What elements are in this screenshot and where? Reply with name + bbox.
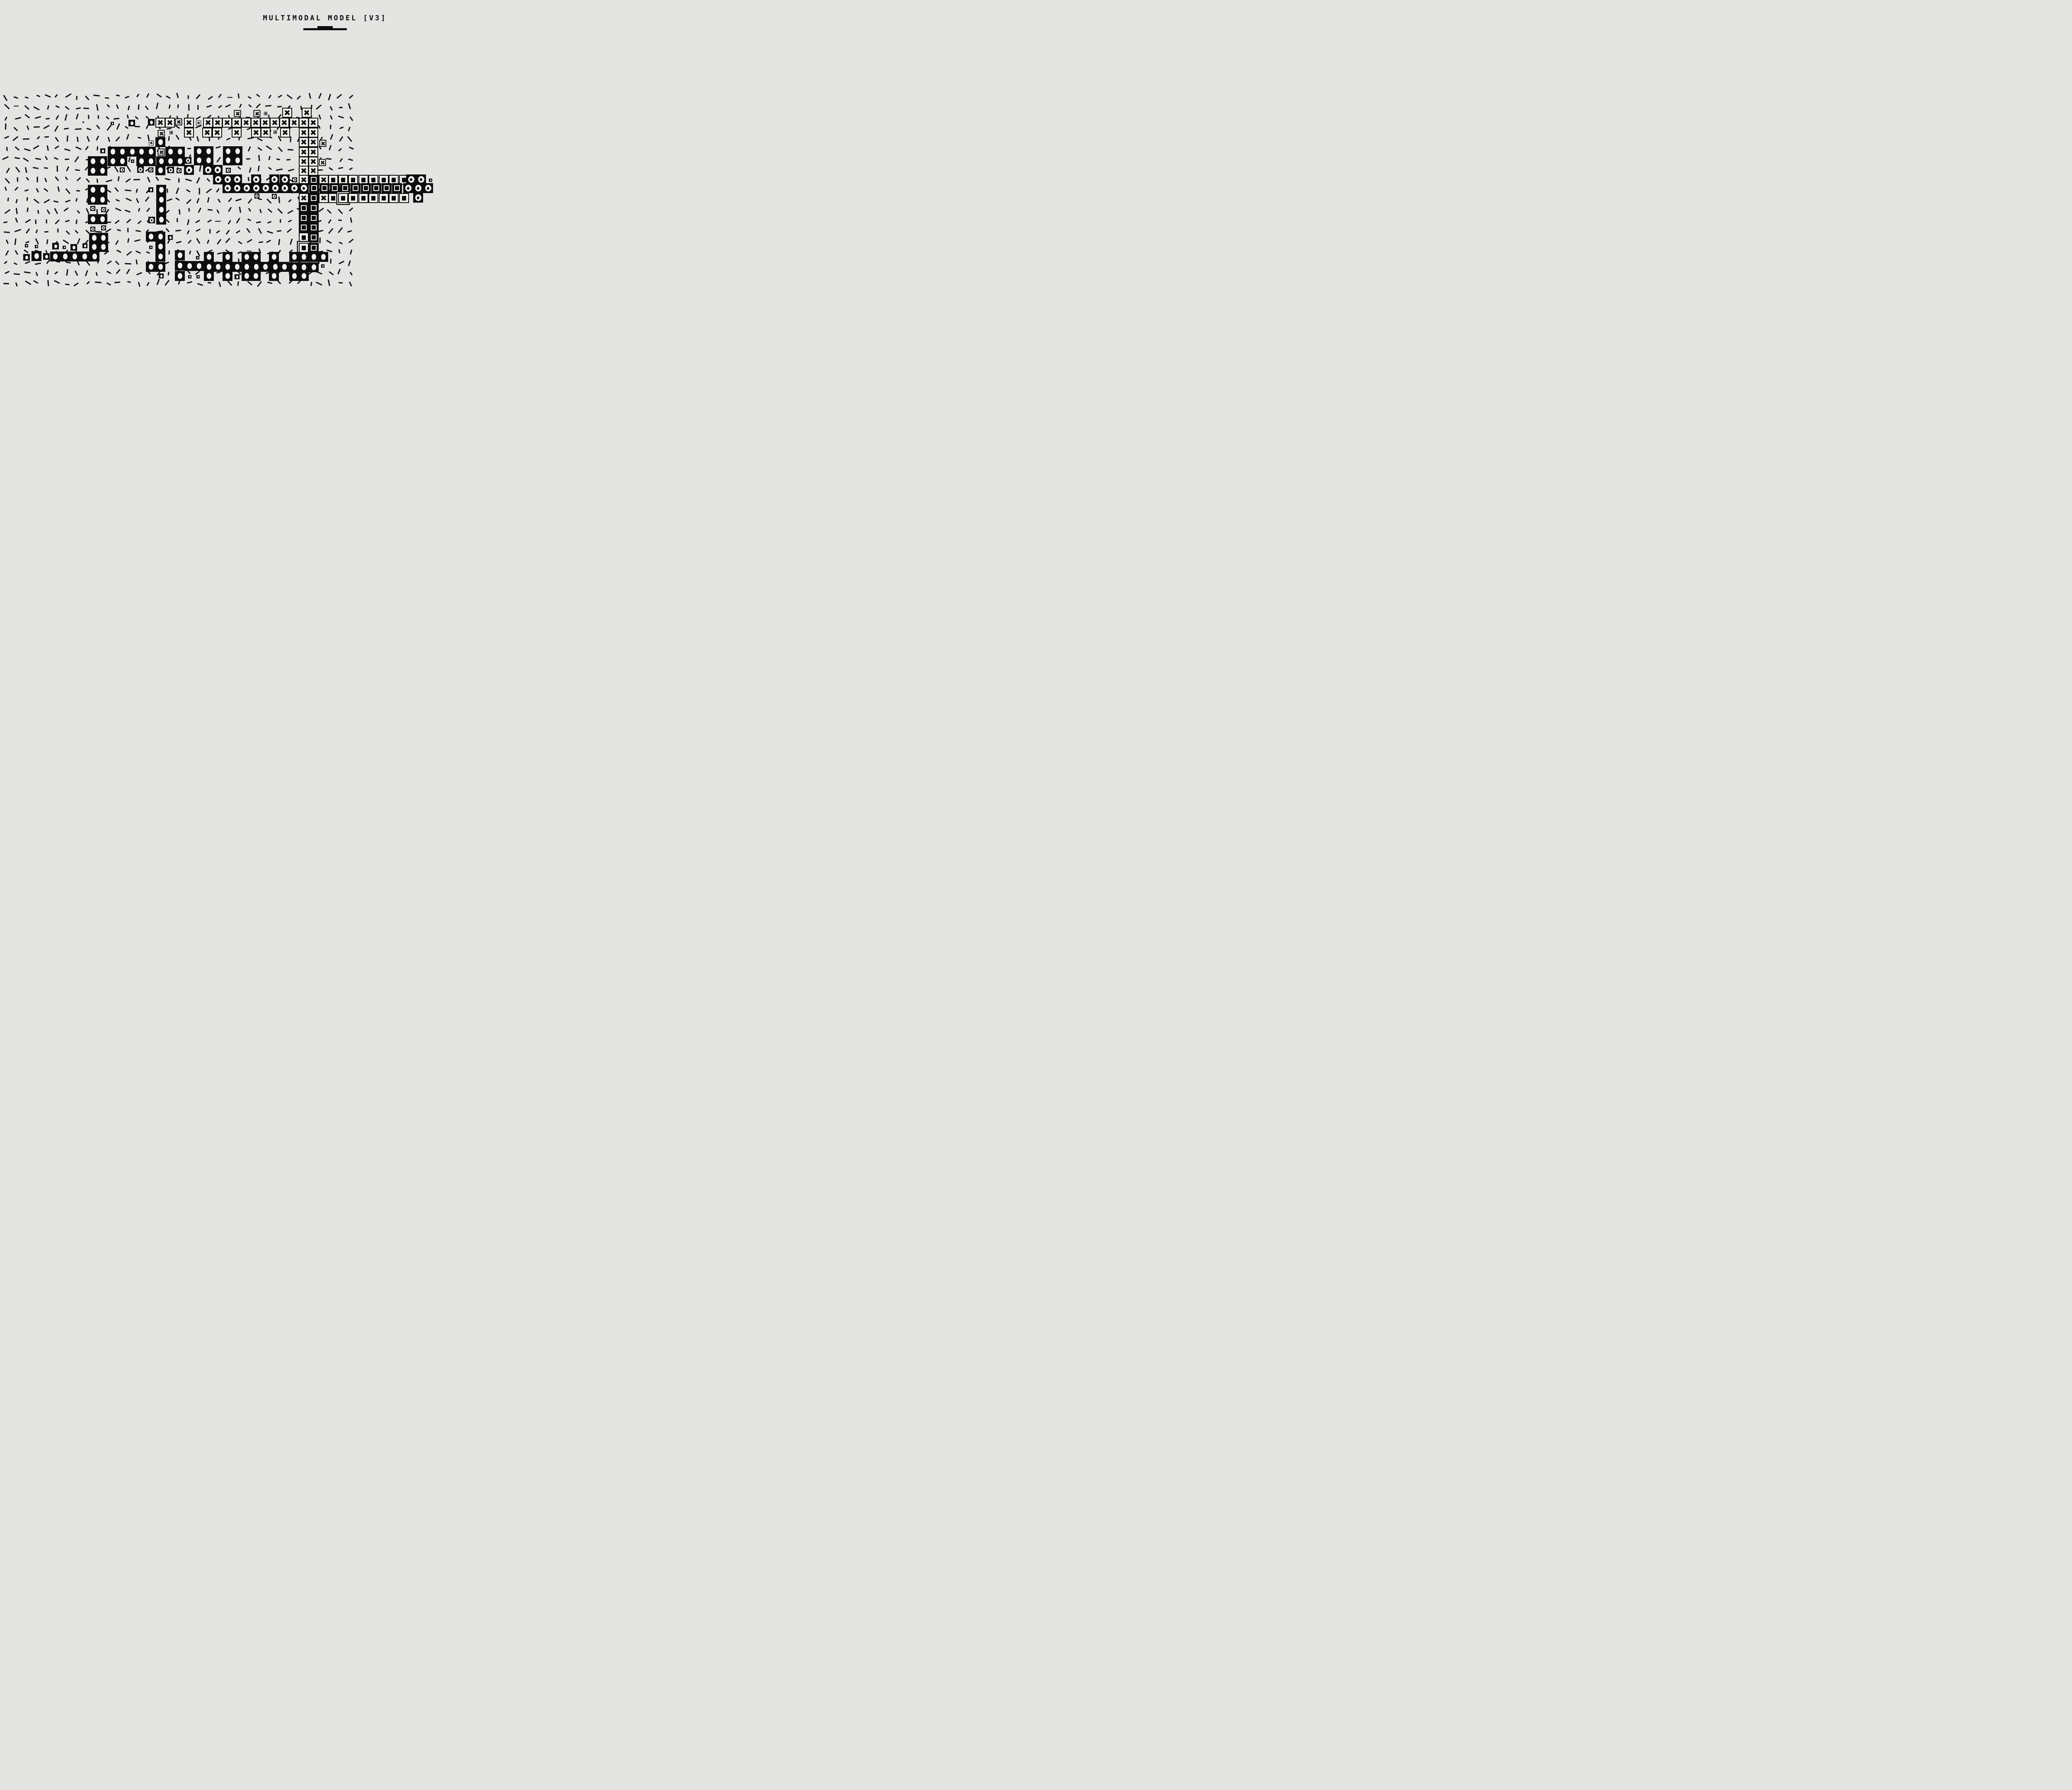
- dash-stroke: [156, 279, 160, 285]
- square-target-on-black-cell: [309, 213, 319, 223]
- dot-cell: [155, 232, 165, 242]
- x-mark-cell: [299, 118, 309, 128]
- dot-cell: [194, 155, 204, 165]
- dash-stroke: [247, 251, 252, 252]
- dot-cell: [70, 244, 77, 251]
- dash-stroke: [215, 221, 221, 222]
- dash-stroke: [330, 106, 333, 110]
- dot-cell: [156, 205, 166, 215]
- dash-stroke: [25, 219, 31, 223]
- dash-stroke: [177, 104, 179, 108]
- dot-cell: [88, 166, 98, 176]
- dash-stroke: [330, 124, 331, 129]
- dot-cell: [203, 155, 213, 165]
- dot-cell: [232, 262, 242, 272]
- dash-stroke: [57, 228, 58, 232]
- dot-cell: [223, 146, 233, 156]
- x-mark-cell: [308, 147, 318, 157]
- dash-stroke: [225, 104, 231, 107]
- dash-stroke: [96, 135, 99, 140]
- dash-stroke: [187, 239, 191, 244]
- dash-stroke: [268, 167, 272, 169]
- dot-cell: [60, 252, 70, 261]
- dash-stroke: [53, 200, 58, 202]
- ring-cell: [251, 183, 261, 193]
- dash-stroke: [33, 280, 39, 284]
- dot-cell: [213, 262, 223, 272]
- dash-stroke: [188, 208, 190, 211]
- dash-stroke: [217, 239, 221, 244]
- dot-cell: [97, 166, 107, 176]
- x-mark-cell: [212, 128, 222, 138]
- dash-stroke: [166, 228, 169, 232]
- dash-stroke: [44, 167, 48, 169]
- dash-stroke: [155, 177, 159, 181]
- dash-stroke: [14, 127, 18, 131]
- dash-stroke: [169, 104, 171, 109]
- square-target-on-black-cell: [299, 213, 309, 223]
- dash-stroke: [338, 116, 344, 119]
- dot-cell: [25, 244, 28, 247]
- dash-stroke: [54, 208, 58, 214]
- x-mark-cell: [213, 118, 223, 128]
- dash-stroke: [350, 249, 352, 254]
- ring-cell: [101, 207, 106, 212]
- x-mark-cell: [319, 159, 326, 166]
- dash-stroke: [96, 272, 98, 276]
- dash-stroke: [236, 218, 240, 223]
- dash-stroke: [339, 106, 343, 108]
- dash-stroke: [25, 167, 27, 173]
- dash-stroke: [338, 219, 342, 221]
- dash-stroke: [198, 208, 201, 213]
- dash-stroke: [328, 279, 330, 286]
- dash-stroke: [24, 189, 29, 191]
- dash-stroke: [248, 96, 252, 99]
- dash-stroke: [6, 239, 9, 244]
- ring-cell: [137, 166, 144, 173]
- x-mark-cell: [280, 128, 290, 138]
- x-mark-cell: [241, 118, 251, 128]
- dash-stroke: [209, 229, 211, 233]
- dash-stroke: [338, 148, 341, 151]
- dash-stroke: [326, 239, 332, 243]
- dash-stroke: [136, 189, 138, 193]
- dash-stroke: [257, 138, 263, 141]
- dash-stroke: [54, 94, 58, 97]
- x-mark-cell: [202, 128, 212, 138]
- dot-cell: [223, 252, 232, 262]
- dash-stroke: [65, 283, 70, 285]
- dash-stroke: [276, 158, 280, 160]
- dot-cell: [251, 262, 261, 272]
- dash-stroke: [96, 125, 100, 129]
- dash-stroke: [136, 230, 141, 232]
- dash-stroke: [115, 240, 119, 245]
- ring-cell: [213, 165, 223, 175]
- square-target-on-black-cell: [309, 193, 319, 203]
- square-target-cell: [358, 193, 368, 203]
- dash-stroke: [85, 95, 89, 100]
- dash-stroke: [187, 148, 191, 149]
- dash-stroke: [85, 270, 88, 276]
- ring-cell: [299, 183, 309, 193]
- dot-cell: [97, 195, 107, 205]
- dash-stroke: [189, 104, 190, 111]
- dash-stroke: [14, 273, 20, 275]
- dash-stroke: [249, 167, 252, 172]
- dash-stroke: [133, 179, 140, 180]
- x-mark-cell: [302, 108, 312, 118]
- dash-stroke: [185, 179, 192, 181]
- dash-stroke: [235, 198, 242, 201]
- dot-cell: [146, 147, 156, 157]
- dot-cell: [149, 246, 152, 249]
- dot-cell: [204, 262, 214, 272]
- dot-cell: [35, 245, 38, 248]
- dash-stroke: [350, 272, 353, 276]
- dash-stroke: [107, 271, 111, 274]
- dash-stroke: [286, 159, 290, 160]
- x-mark-cell: [299, 128, 309, 138]
- dash-stroke: [278, 94, 282, 98]
- square-target-cell: [389, 193, 399, 203]
- dash-stroke: [288, 220, 292, 222]
- dash-stroke: [93, 94, 100, 96]
- x-mark-cell: [158, 149, 165, 156]
- dash-stroke: [146, 93, 149, 98]
- dash-stroke: [107, 125, 111, 131]
- dash-stroke: [46, 209, 50, 214]
- dash-stroke: [25, 97, 29, 99]
- dash-stroke: [46, 239, 48, 244]
- dash-stroke: [145, 196, 149, 202]
- dash-stroke: [179, 209, 181, 214]
- dash-stroke: [218, 94, 222, 98]
- dash-stroke: [339, 261, 344, 264]
- dot-cell: [196, 275, 200, 278]
- dash-stroke: [247, 281, 252, 285]
- dash-stroke: [338, 209, 343, 214]
- dash-stroke: [316, 281, 323, 285]
- dash-stroke: [207, 282, 211, 283]
- dash-stroke: [36, 272, 38, 276]
- dash-stroke: [259, 209, 261, 213]
- dash-stroke: [87, 128, 91, 130]
- dot-cell: [251, 252, 261, 262]
- dash-stroke: [44, 136, 49, 138]
- x-mark-cell: [264, 112, 267, 115]
- ring-cell: [280, 183, 290, 193]
- x-mark-cell: [282, 108, 292, 118]
- x-mark-cell: [203, 118, 213, 128]
- dot-cell: [117, 147, 127, 157]
- point-speck: [83, 121, 84, 123]
- dash-stroke: [75, 230, 78, 234]
- dash-stroke: [24, 271, 31, 273]
- dash-stroke: [95, 231, 102, 232]
- dot-cell: [299, 271, 309, 281]
- dash-stroke: [138, 104, 139, 109]
- dash-stroke: [5, 178, 10, 184]
- dash-stroke: [247, 239, 252, 242]
- dash-stroke: [96, 104, 98, 111]
- dash-stroke: [167, 271, 169, 275]
- dash-stroke: [75, 169, 80, 171]
- dash-stroke: [35, 116, 41, 119]
- dash-stroke: [349, 146, 354, 149]
- dash-stroke: [76, 96, 77, 100]
- dash-stroke: [35, 229, 37, 233]
- dot-cell: [309, 252, 319, 262]
- square-target-on-black-cell: [299, 223, 309, 232]
- dash-stroke: [77, 210, 80, 213]
- square-target-on-black-cell: [330, 183, 340, 193]
- ring-cell: [184, 165, 194, 175]
- dash-stroke: [108, 137, 110, 142]
- dash-stroke: [105, 97, 109, 98]
- dash-stroke: [207, 178, 211, 182]
- dash-stroke: [189, 250, 191, 254]
- dash-stroke: [3, 283, 9, 284]
- dot-cell: [80, 252, 90, 261]
- dash-stroke: [339, 249, 340, 253]
- dash-stroke: [107, 189, 111, 193]
- dash-stroke: [57, 186, 60, 191]
- dash-stroke: [5, 116, 7, 121]
- dash-stroke: [176, 241, 182, 243]
- dot-cell: [204, 271, 214, 281]
- x-mark-cell: [251, 118, 261, 128]
- x-mark-cell: [308, 118, 318, 128]
- dash-stroke: [348, 126, 350, 131]
- dash-stroke: [165, 261, 169, 264]
- dash-stroke: [186, 199, 191, 204]
- dash-stroke: [248, 208, 251, 211]
- ring-cell: [413, 193, 423, 203]
- dash-stroke: [25, 241, 29, 243]
- dot-cell: [156, 195, 166, 205]
- dash-stroke: [128, 105, 130, 110]
- dash-stroke: [338, 167, 343, 169]
- ring-cell: [148, 167, 153, 172]
- dash-stroke: [278, 196, 280, 203]
- dash-stroke: [187, 219, 189, 225]
- dash-stroke: [127, 165, 131, 172]
- dot-cell: [165, 156, 175, 166]
- dash-stroke: [226, 138, 230, 140]
- dash-stroke: [16, 208, 18, 214]
- dash-stroke: [319, 208, 324, 212]
- dash-stroke: [5, 271, 10, 273]
- dot-cell: [155, 137, 165, 147]
- dash-stroke: [336, 94, 342, 98]
- dash-stroke: [33, 145, 39, 149]
- dash-stroke: [168, 136, 169, 140]
- x-mark-cell: [319, 193, 329, 203]
- dot-cell: [88, 195, 98, 205]
- dash-stroke: [64, 128, 69, 129]
- dash-stroke: [258, 228, 261, 234]
- dash-stroke: [196, 177, 200, 184]
- dash-stroke: [114, 187, 119, 192]
- dash-stroke: [238, 93, 240, 98]
- dash-stroke: [258, 165, 260, 171]
- dash-stroke: [258, 241, 263, 243]
- dash-stroke: [247, 228, 251, 233]
- dot-cell: [242, 252, 252, 262]
- dash-stroke: [65, 177, 68, 180]
- dash-stroke: [35, 238, 39, 244]
- x-mark-cell: [299, 166, 309, 176]
- dash-stroke: [43, 125, 49, 129]
- dot-cell: [156, 185, 166, 195]
- dash-stroke: [248, 146, 251, 151]
- dot-cell: [242, 271, 252, 281]
- dash-stroke: [55, 176, 59, 181]
- x-mark-cell: [308, 137, 318, 147]
- dash-stroke: [349, 94, 353, 99]
- dot-cell: [242, 262, 252, 272]
- square-target-cell: [348, 193, 358, 203]
- dash-stroke: [329, 145, 332, 150]
- dash-stroke: [195, 220, 200, 223]
- dash-stroke: [65, 93, 72, 98]
- dash-stroke: [349, 207, 353, 211]
- dash-stroke: [3, 231, 10, 233]
- dash-stroke: [88, 115, 90, 119]
- dash-stroke: [115, 261, 119, 265]
- dash-stroke: [268, 208, 272, 213]
- dash-stroke: [147, 177, 150, 182]
- dash-stroke: [196, 198, 199, 203]
- dot-cell: [235, 274, 240, 279]
- dash-stroke: [247, 198, 252, 204]
- dot-cell: [98, 242, 108, 252]
- dash-stroke: [77, 136, 79, 142]
- dash-stroke: [145, 116, 149, 119]
- dot-cell: [196, 256, 199, 259]
- dash-stroke: [276, 168, 283, 170]
- dash-stroke: [165, 280, 170, 285]
- dash-stroke: [126, 268, 130, 274]
- dash-stroke: [128, 157, 131, 162]
- dash-stroke: [138, 137, 141, 138]
- x-mark-cell: [308, 166, 318, 176]
- dash-stroke: [247, 218, 251, 221]
- dash-stroke: [318, 93, 322, 99]
- dash-stroke: [237, 281, 239, 285]
- ring-cell: [242, 183, 252, 193]
- square-target-on-black-cell: [371, 183, 381, 193]
- dash-stroke: [237, 166, 241, 169]
- dash-stroke: [44, 188, 48, 191]
- square-target-double-cell: [299, 243, 309, 253]
- dash-stroke: [267, 281, 272, 283]
- dash-stroke: [6, 147, 7, 151]
- dash-stroke: [176, 187, 179, 194]
- x-mark-cell: [299, 193, 309, 203]
- dash-stroke: [320, 237, 321, 243]
- dot-cell: [156, 156, 166, 166]
- dash-stroke: [208, 96, 213, 99]
- dash-stroke: [277, 106, 282, 107]
- dash-stroke: [339, 126, 344, 129]
- ring-cell: [254, 194, 259, 198]
- dash-stroke: [3, 95, 8, 101]
- dash-stroke: [27, 207, 29, 212]
- dot-cell: [155, 262, 165, 272]
- dash-stroke: [166, 219, 170, 223]
- dot-cell: [146, 262, 156, 272]
- x-mark-cell: [196, 121, 201, 126]
- dash-stroke: [65, 114, 68, 121]
- square-target-on-black-cell: [351, 183, 361, 193]
- dash-stroke: [76, 107, 81, 109]
- dot-cell: [88, 214, 98, 224]
- dash-stroke: [44, 199, 50, 203]
- dash-stroke: [106, 116, 109, 119]
- dot-cell: [289, 271, 299, 281]
- dash-stroke: [347, 136, 352, 142]
- dash-stroke: [176, 135, 179, 140]
- ring-cell: [289, 183, 299, 193]
- dash-stroke: [125, 189, 131, 191]
- dash-stroke: [217, 252, 222, 254]
- dash-stroke: [238, 241, 242, 244]
- x-mark-cell: [299, 157, 309, 167]
- dash-stroke: [55, 137, 59, 142]
- x-mark-cell: [232, 118, 242, 128]
- artwork-stage: MULTIMODAL MODEL [V3]: [0, 0, 650, 365]
- dash-stroke: [64, 148, 70, 151]
- dash-stroke: [265, 105, 271, 106]
- dash-stroke: [267, 221, 271, 223]
- dot-cell: [43, 253, 50, 260]
- dash-stroke: [248, 104, 252, 107]
- x-mark-cell: [184, 118, 194, 128]
- dash-stroke: [246, 158, 250, 159]
- dash-stroke: [169, 250, 170, 254]
- dash-stroke: [56, 105, 60, 108]
- dot-cell: [260, 262, 270, 272]
- dot-cell: [148, 119, 155, 126]
- dash-stroke: [207, 239, 209, 244]
- dot-cell: [50, 252, 60, 261]
- dash-stroke: [55, 219, 60, 224]
- dash-stroke: [187, 281, 192, 283]
- dot-cell: [175, 147, 185, 157]
- dash-stroke: [206, 105, 211, 107]
- dash-stroke: [24, 249, 28, 253]
- dash-stroke: [83, 107, 89, 109]
- dot-cell: [184, 261, 194, 271]
- dash-stroke: [45, 118, 49, 119]
- dot-cell: [270, 262, 280, 272]
- dash-stroke: [115, 208, 121, 211]
- dash-stroke: [188, 95, 189, 99]
- dash-stroke: [127, 281, 131, 283]
- dot-cell: [128, 120, 135, 126]
- dot-cell: [299, 252, 309, 262]
- x-mark-cell: [222, 118, 232, 128]
- dash-stroke: [217, 209, 220, 213]
- ring-cell: [270, 183, 280, 193]
- dash-stroke: [65, 220, 70, 222]
- dash-stroke: [65, 261, 71, 263]
- dash-stroke: [280, 219, 281, 223]
- dash-stroke: [136, 250, 141, 254]
